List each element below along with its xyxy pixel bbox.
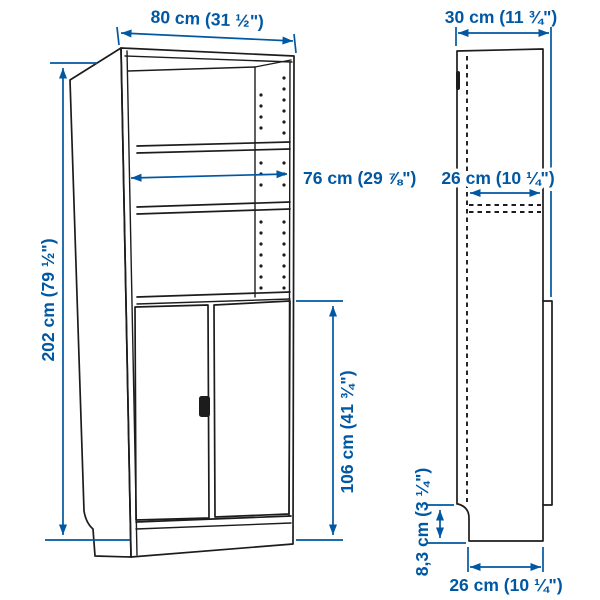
door-left [135, 305, 209, 520]
overall-height-label: 202 cm (79 ½") [38, 238, 58, 361]
door-height-label: 106 cm (41 ¾") [337, 370, 357, 493]
interior-width-label: 76 cm (29 ⅞") [303, 168, 416, 188]
shelf-lower [137, 202, 290, 214]
dimension-arrow [131, 174, 287, 178]
dimension-arrow [121, 33, 293, 41]
dim-plinth-height: 8,3 cm (3 ¼") [412, 468, 466, 577]
dim-door-height: 106 cm (41 ¾") [296, 301, 357, 540]
door-handle-icon [199, 396, 210, 417]
shelf-upper [137, 142, 290, 153]
top-inner-ceiling-line [128, 67, 255, 71]
extension-line [294, 34, 296, 53]
base-depth-label: 26 cm (10 ¼") [449, 575, 562, 595]
overall-width-label: 80 cm (31 ½") [150, 7, 264, 32]
dim-interior-width: 76 cm (29 ⅞") [131, 168, 416, 188]
diagram-canvas: 80 cm (31 ½") 202 cm (79 ½") 76 cm (29 ⅞… [0, 0, 600, 600]
dim-interior-depth: 26 cm (10 ¼") [441, 168, 554, 193]
door-right [214, 301, 290, 517]
side-view-drawing [457, 49, 552, 541]
overall-depth-label: 30 cm (11 ¾") [445, 7, 557, 27]
plinth-height-label: 8,3 cm (3 ¼") [412, 468, 432, 577]
front-view-drawing [70, 48, 294, 557]
dimension-diagram: 80 cm (31 ½") 202 cm (79 ½") 76 cm (29 ⅞… [0, 0, 600, 600]
peg-holes [261, 78, 284, 290]
dim-overall-height: 202 cm (79 ½") [38, 63, 130, 540]
top-panel-line [125, 56, 292, 62]
side-door-profile [543, 301, 552, 505]
interior-depth-label: 26 cm (10 ¼") [441, 168, 554, 188]
dim-overall-width: 80 cm (31 ½") [117, 7, 296, 53]
extension-line [117, 27, 119, 45]
plinth [136, 516, 291, 529]
dim-base-depth: 26 cm (10 ¼") [449, 547, 562, 595]
side-profile-outline [457, 49, 543, 541]
